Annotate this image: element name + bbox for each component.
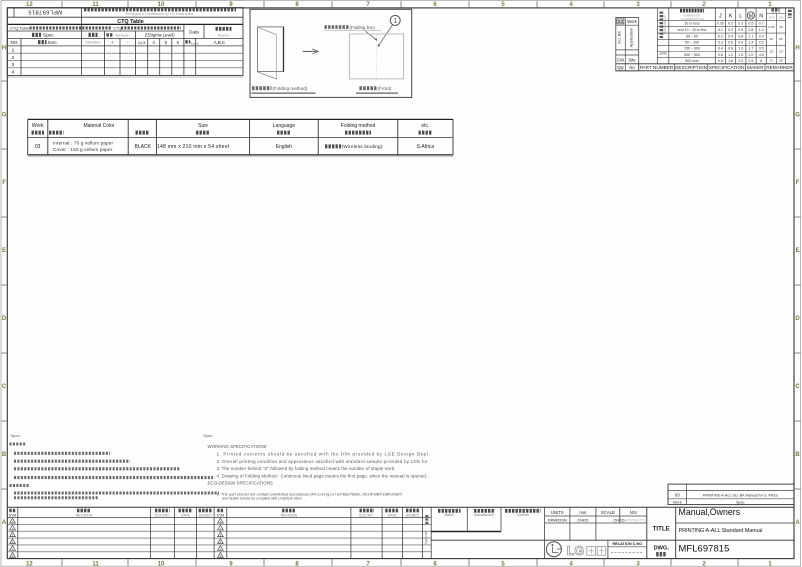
svg-text:+: + (111, 40, 114, 45)
svg-text:Spec.: Spec. (11, 433, 21, 438)
svg-text:Work: Work (627, 19, 638, 24)
svg-text:1.2: 1.2 (759, 28, 764, 32)
svg-text:2.0: 2.0 (738, 59, 743, 63)
svg-text:150 ~ 300: 150 ~ 300 (684, 47, 700, 51)
svg-text:TITLE: TITLE (653, 526, 670, 533)
svg-text:APPD: APPD (625, 517, 636, 522)
svg-text:PART NUMBER: PART NUMBER (640, 65, 674, 70)
svg-text:English: English (276, 144, 293, 150)
svg-text:N/S: N/S (630, 510, 637, 515)
svg-text:PRINTING A-ALL Standard Manual: PRINTING A-ALL Standard Manual (679, 528, 763, 534)
svg-text:20': 20' (779, 37, 783, 41)
svg-text:03: 03 (35, 144, 41, 150)
svg-text:DATE: DATE (181, 514, 191, 518)
svg-text:Site: Site (628, 57, 636, 62)
svg-text:NO: NO (11, 40, 18, 45)
svg-text:S.Africa: S.Africa (417, 144, 435, 150)
svg-text:Internal : 70 g vellum paper: Internal : 70 g vellum paper (53, 141, 113, 146)
svg-text:D: D (2, 316, 7, 322)
svg-text:1.4: 1.4 (748, 41, 753, 45)
svg-text:ECO.NO.: ECO.NO. (359, 514, 373, 518)
svg-text:0.8: 0.8 (748, 28, 753, 32)
svg-text:6: 6 (760, 59, 762, 63)
svg-text:Result: Result (191, 41, 199, 45)
svg-text:DESCRIPTION: DESCRIPTION (675, 65, 707, 70)
svg-text:Data: Data (189, 29, 199, 34)
svg-text:1. Printed contents should be: 1. Printed contents should be satisfied … (217, 451, 431, 456)
svg-text:CTQ Table: CTQ Table (117, 19, 144, 25)
svg-text:0.1: 0.1 (718, 28, 723, 32)
svg-text:4: 4 (12, 70, 15, 76)
svg-text:E: E (2, 248, 6, 254)
svg-text:0.3: 0.3 (728, 28, 733, 32)
svg-text:D: D (795, 316, 800, 322)
svg-text:Size: Size (198, 123, 208, 129)
svg-text:and details should be compli: and details should be complied with LG(6… (222, 497, 303, 501)
svg-text:REVISION: REVISION (281, 514, 298, 518)
svg-text:1.1: 1.1 (748, 34, 753, 38)
svg-text:2. Overall printing condition: 2. Overall printing condition and appear… (217, 459, 428, 464)
svg-text:BLACK: BLACK (135, 144, 152, 150)
svg-text:30 ~ 50: 30 ~ 50 (686, 34, 698, 38)
svg-text:4. Drawing of Folding Method :: 4. Drawing of Folding Method : Continous… (217, 473, 428, 478)
svg-text:0.7: 0.7 (759, 22, 764, 26)
svg-text:(Wireless binding): (Wireless binding) (342, 144, 383, 149)
svg-text:1: 1 (12, 48, 15, 54)
svg-text:APPD: APPD (636, 517, 647, 522)
svg-text:03: 03 (675, 493, 680, 498)
svg-text:A,B,C: A,B,C (214, 40, 225, 45)
svg-text:30': 30' (769, 37, 773, 41)
svg-text:Spec.: Spec. (43, 33, 55, 38)
svg-text:SYM: SYM (217, 514, 225, 518)
svg-text:L: L (739, 13, 742, 19)
svg-text:etc.: etc. (421, 123, 429, 129)
svg-text:Maker: Maker (445, 513, 455, 517)
svg-text:0.6: 0.6 (728, 41, 733, 45)
svg-text:G: G (2, 113, 7, 119)
svg-text:Privileged & Confidential by L: Privileged & Confidential by LG Electron… (125, 12, 194, 16)
svg-text:0.5: 0.5 (748, 22, 753, 26)
svg-text:Spec: Spec (736, 500, 745, 504)
svg-text:3.5: 3.5 (759, 47, 764, 51)
svg-text:CHKD: CHKD (577, 517, 588, 522)
svg-text:2.0: 2.0 (748, 53, 753, 57)
svg-text:1°30': 1°30' (768, 25, 775, 29)
svg-text:15': 15' (769, 49, 773, 53)
svg-text:ECO.NO.: ECO.NO. (155, 514, 169, 518)
svg-text:B: B (795, 452, 800, 458)
svg-text:CHKD: CHKD (613, 517, 624, 522)
svg-text:F: F (796, 180, 800, 186)
svg-text:DRW/DSN: DRW/DSN (548, 517, 567, 522)
svg-text:DWG,: DWG, (654, 546, 670, 552)
svg-text:MIN: MIN (779, 15, 784, 19)
svg-text:over 10 ~ 30 or less: over 10 ~ 30 or less (677, 28, 706, 32)
svg-text:Language: Language (273, 123, 295, 129)
svg-text:LG: LG (567, 544, 584, 558)
svg-text:ANGLE: ANGLE (772, 10, 781, 14)
svg-text:F: F (2, 180, 6, 186)
svg-text:UNITS: UNITS (551, 510, 564, 515)
svg-text:148 mm x 210 mm x 54 sheet: 148 mm x 210 mm x 54 sheet (157, 144, 230, 150)
svg-text:11: 11 (92, 562, 99, 567)
svg-text:0.05: 0.05 (717, 22, 723, 26)
svg-text:MAX: MAX (769, 15, 775, 19)
svg-text:Manufacturer: Manufacturer (474, 513, 495, 517)
svg-text:B: B (2, 452, 7, 458)
svg-text:Qty: Qty (617, 65, 624, 70)
svg-text:3,4,5: 3,4,5 (138, 41, 146, 45)
svg-text:N: N (759, 13, 763, 19)
svg-text:REVISION: REVISION (76, 514, 93, 518)
svg-text:Dimension: Dimension (85, 41, 100, 45)
svg-text:CW: CW (617, 57, 624, 62)
svg-text:Reason: Reason (218, 34, 230, 38)
svg-text:2.5: 2.5 (748, 59, 753, 63)
svg-text:SPECIFICATION: SPECIFICATION (709, 65, 745, 70)
svg-text:SIGNED: SIGNED (199, 514, 213, 518)
svg-text:±mm: ±mm (659, 52, 667, 56)
svg-text:45': 45' (779, 25, 783, 29)
svg-text:0.8: 0.8 (738, 34, 743, 38)
svg-text:10 or less: 10 or less (684, 22, 700, 26)
svg-text:0.5: 0.5 (738, 28, 743, 32)
svg-text:H: H (2, 46, 6, 52)
svg-text:1: 1 (393, 18, 397, 25)
svg-text:Application: Application (629, 28, 634, 48)
svg-text:10: 10 (158, 562, 165, 567)
svg-text:12: 12 (26, 562, 33, 567)
svg-text:1.6: 1.6 (728, 59, 733, 63)
svg-text:3. The number behind "S" follo: 3. The number behind "S" followed by fol… (217, 466, 396, 471)
svg-text:Manual,Owners: Manual,Owners (679, 507, 741, 517)
svg-text:SCALE: SCALE (601, 510, 615, 515)
svg-text:mm: mm (579, 510, 586, 515)
svg-text:REMARKER: REMARKER (766, 65, 793, 70)
svg-text:RELATION C.NO: RELATION C.NO (612, 542, 642, 546)
svg-text:0.8: 0.8 (728, 47, 733, 51)
svg-text:0.3: 0.3 (738, 22, 743, 26)
svg-text:TOLERANCE: TOLERANCE (663, 15, 667, 34)
svg-text:0.3: 0.3 (718, 41, 723, 45)
svg-text:Approval: Approval (424, 531, 428, 544)
svg-text:C: C (2, 384, 7, 390)
svg-text:Folding method: Folding method (341, 123, 376, 129)
svg-text:1.5: 1.5 (738, 53, 743, 57)
svg-text:300 ~ 500: 300 ~ 500 (684, 53, 700, 57)
svg-text:CTQ Table: CTQ Table (10, 26, 30, 31)
svg-text:4.5: 4.5 (759, 53, 764, 57)
svg-text:03: 03 (618, 19, 623, 24)
svg-text:Material Color: Material Color (83, 123, 114, 129)
svg-text:2.5: 2.5 (759, 41, 764, 45)
svg-text:2.0: 2.0 (759, 34, 764, 38)
svg-text:1. The part should not contai: 1. The part should not contain prohibite… (217, 491, 403, 496)
svg-text:1.2: 1.2 (728, 53, 733, 57)
svg-text:10': 10' (779, 49, 783, 53)
svg-text:Confirm: Confirm (517, 513, 529, 517)
svg-text:Z(Sigma Level): Z(Sigma Level) (145, 32, 175, 37)
svg-text:0.9: 0.9 (738, 41, 743, 45)
svg-text:(Folding line): (Folding line) (350, 25, 376, 30)
svg-text:CLASSIFICATION: CLASSIFICATION (680, 17, 704, 21)
svg-text:PRINTING A-ALL SU, BK Manual f: PRINTING A-ALL SU, BK Manual for S. Afri… (703, 493, 779, 497)
svg-text:Work: Work (32, 123, 44, 129)
svg-text:A: A (795, 520, 800, 526)
svg-text:500 over: 500 over (685, 59, 700, 63)
svg-text:50 ~ 150: 50 ~ 150 (685, 41, 699, 45)
svg-text:J: J (719, 13, 722, 19)
svg-text:1.0: 1.0 (738, 47, 743, 51)
svg-text:A: A (2, 520, 7, 526)
svg-text:Tolerance: Tolerance (115, 33, 129, 37)
svg-text:Cover : 150 g vellum paper: Cover : 150 g vellum paper (53, 147, 113, 152)
svg-text:CTQ: CTQ (113, 26, 121, 31)
svg-text:SIGNED: SIGNED (406, 514, 420, 518)
svg-text:1.7: 1.7 (748, 47, 753, 51)
svg-text:Item: Item (48, 40, 57, 45)
svg-text:0.2: 0.2 (718, 34, 723, 38)
svg-text:No: No (629, 65, 635, 70)
svg-text:0.8: 0.8 (718, 59, 723, 63)
svg-text:3: 3 (12, 62, 15, 68)
svg-text:WORKING SPECIFICATIONS: WORKING SPECIFICATIONS (208, 444, 267, 449)
svg-text:(Front): (Front) (378, 86, 392, 91)
svg-text:SU, BK: SU, BK (617, 31, 622, 44)
svg-text:0.4: 0.4 (718, 47, 723, 51)
svg-text:2: 2 (12, 55, 15, 61)
svg-text:MAKER: MAKER (747, 65, 764, 70)
svg-text:0.6: 0.6 (718, 53, 723, 57)
svg-text:0.2: 0.2 (728, 22, 733, 26)
svg-text:30': 30' (779, 59, 783, 63)
svg-text:SYM: SYM (9, 514, 17, 518)
svg-text:Work: Work (673, 500, 682, 504)
svg-text:DATE: DATE (388, 514, 398, 518)
svg-text:H: H (795, 46, 799, 52)
svg-text:G: G (795, 113, 800, 119)
svg-text:E: E (796, 248, 800, 254)
svg-text:0.4: 0.4 (728, 34, 733, 38)
svg-text:C: C (795, 384, 800, 390)
svg-text:ECO-DESIGN SPECIFICATIONS: ECO-DESIGN SPECIFICATIONS (208, 481, 273, 486)
svg-text:MFL697815: MFL697815 (679, 543, 730, 554)
svg-text:K: K (729, 13, 733, 19)
svg-text:Spec.: Spec. (203, 433, 213, 438)
svg-text:MFL697815: MFL697815 (28, 9, 62, 15)
svg-text:(Folding method): (Folding method) (273, 86, 308, 91)
